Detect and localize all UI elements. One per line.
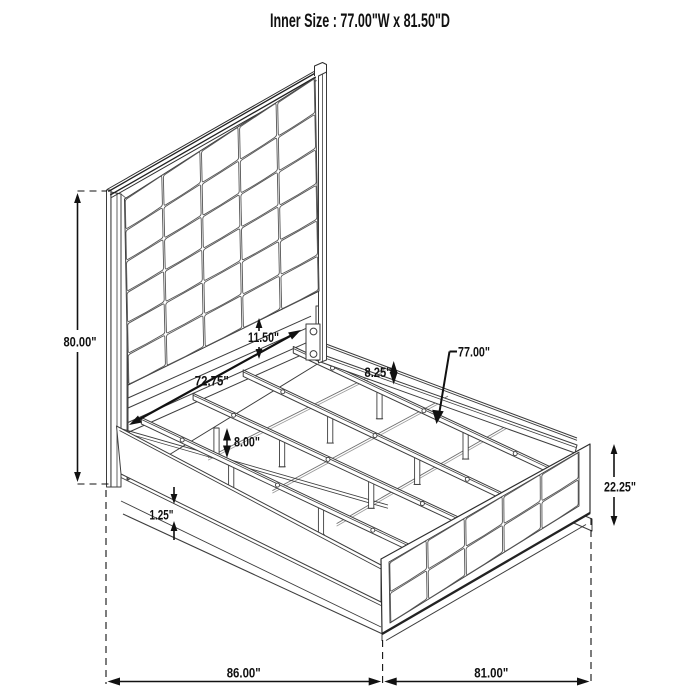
svg-text:80.00": 80.00": [64, 334, 97, 350]
svg-text:1.25": 1.25": [150, 507, 174, 523]
svg-text:77.00": 77.00": [458, 344, 490, 360]
svg-text:8.00": 8.00": [234, 434, 260, 450]
svg-text:86.00": 86.00": [227, 665, 261, 681]
svg-text:11.50": 11.50": [248, 329, 279, 345]
svg-text:81.00": 81.00": [474, 665, 508, 681]
svg-text:8.25": 8.25": [365, 364, 392, 380]
svg-text:22.25": 22.25": [604, 479, 636, 495]
svg-text:Inner Size : 77.00"W x 81.50"D: Inner Size : 77.00"W x 81.50"D: [270, 10, 450, 32]
svg-text:72.75": 72.75": [195, 373, 229, 389]
